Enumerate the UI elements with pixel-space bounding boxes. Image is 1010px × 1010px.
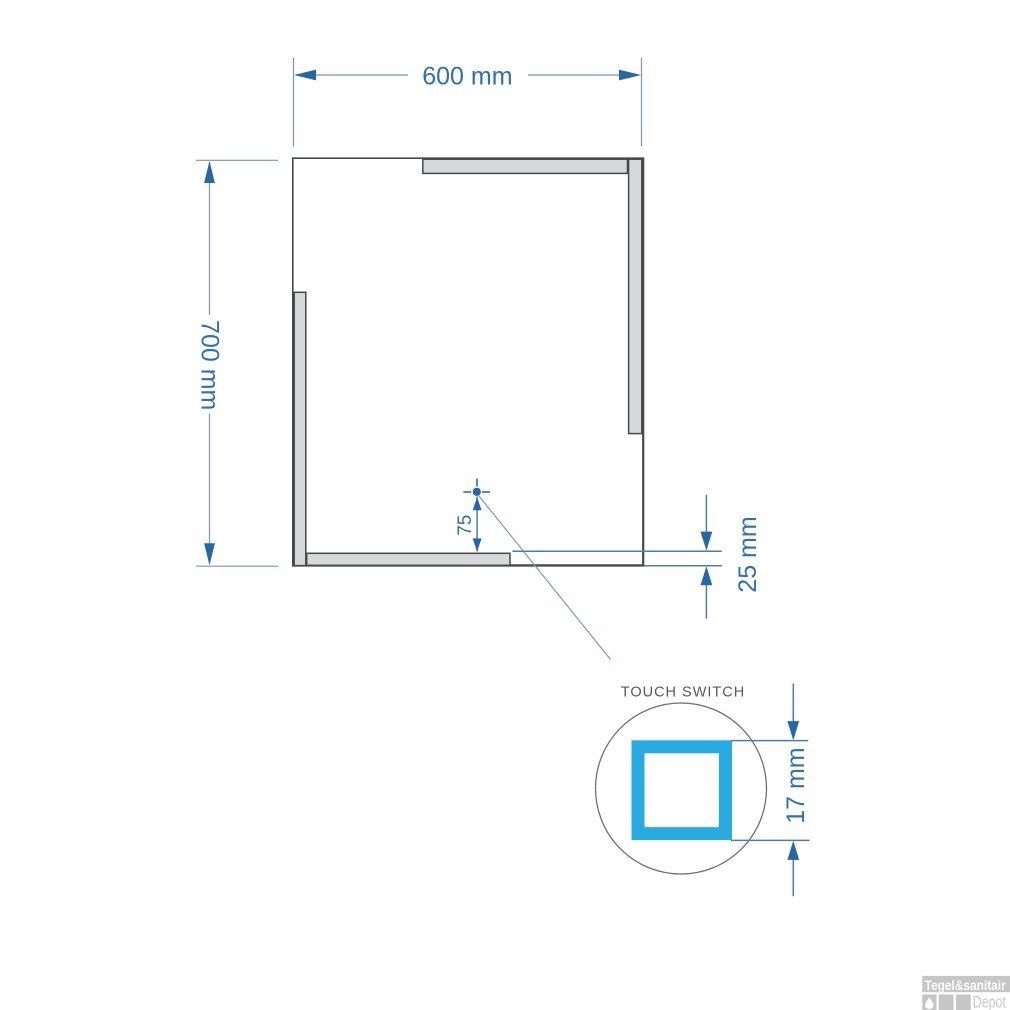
- svg-text:Tegel&sanitair: Tegel&sanitair: [925, 977, 1006, 993]
- svg-text:TOUCH SWITCH: TOUCH SWITCH: [621, 685, 746, 701]
- svg-text:17 mm: 17 mm: [782, 747, 810, 823]
- svg-text:25 mm: 25 mm: [734, 516, 762, 592]
- svg-text:Depot: Depot: [973, 993, 1006, 1010]
- svg-text:700 mm: 700 mm: [196, 320, 224, 410]
- svg-text:600 mm: 600 mm: [422, 62, 512, 90]
- svg-text:75: 75: [455, 515, 476, 536]
